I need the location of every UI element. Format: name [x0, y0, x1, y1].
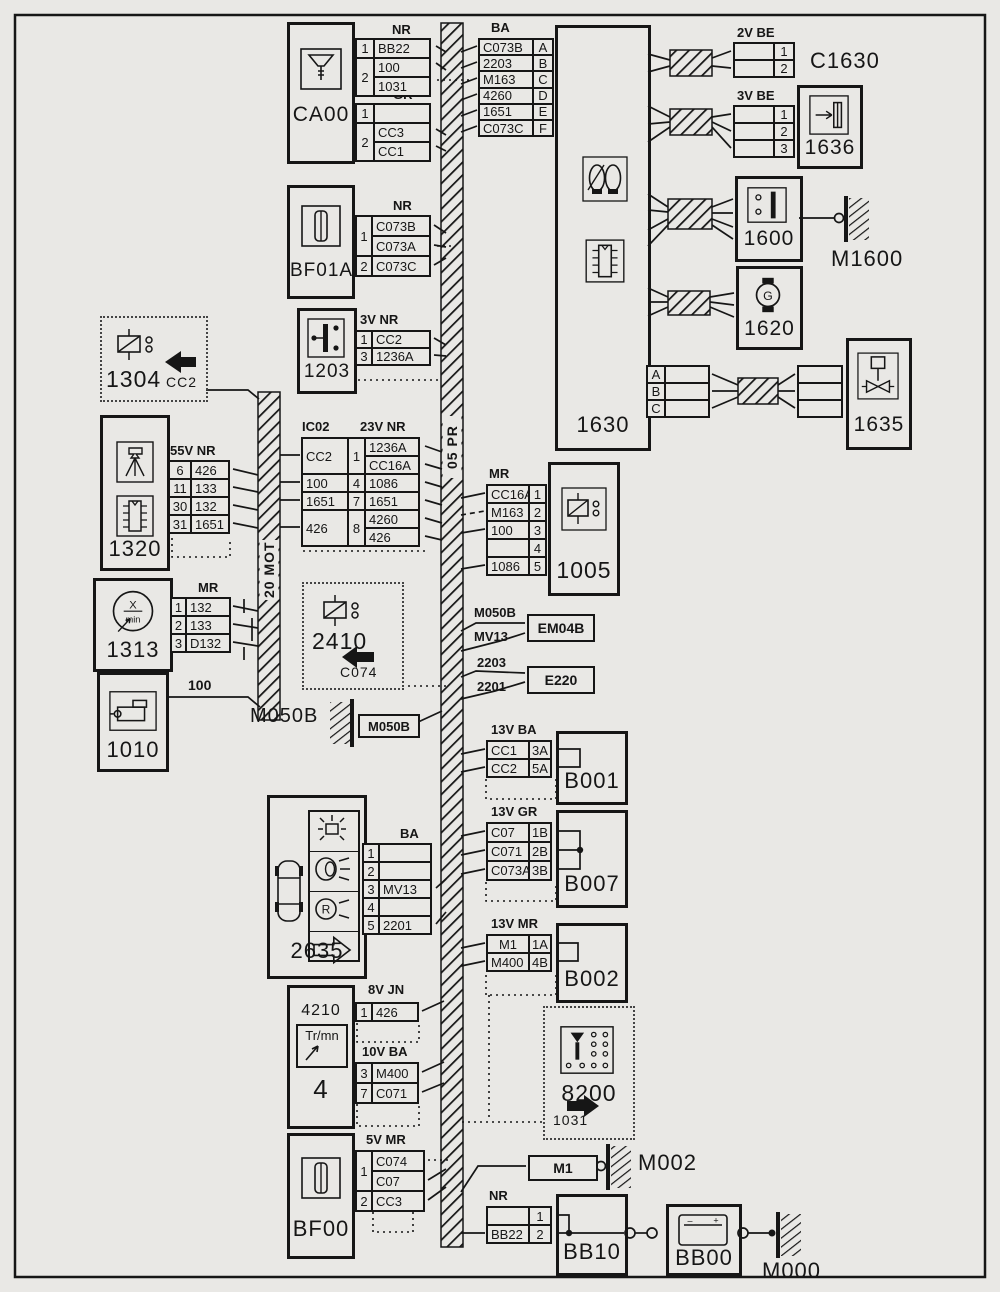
component-label: 1320 [103, 536, 167, 562]
table-cell: 1A [530, 936, 550, 952]
alternator-icon: G [747, 273, 789, 317]
car-top-view-icon [274, 856, 304, 926]
component-1620: G 1620 [736, 266, 803, 350]
component-label: 1636 [800, 136, 860, 160]
component-label: B001 [559, 768, 625, 794]
component-label: BF00 [290, 1216, 352, 1242]
table-cell: 1 [357, 1004, 371, 1020]
component-label: 1600 [738, 227, 800, 251]
table-cell: A [648, 367, 664, 382]
harness-bus-main [441, 23, 463, 1247]
table-cell: 3 [530, 522, 545, 538]
ca00-nr-table: 1BB2221001031 [355, 38, 431, 97]
table-cell: 2 [364, 863, 378, 879]
table-cell: 1 [172, 599, 185, 615]
table-header: 13V BA [491, 722, 537, 737]
table-cell: 7 [357, 1084, 371, 1102]
table-cell: 133 [187, 617, 229, 633]
hazard-icon-cell [310, 812, 358, 852]
table-cell: C073B [373, 217, 429, 235]
b002-table: M11AM4004B [486, 934, 552, 972]
table-cell: 426 [366, 529, 418, 545]
table-cell: 4 [364, 899, 378, 915]
component-label: 1010 [100, 737, 166, 763]
table-cell [799, 401, 841, 416]
component-1600: 1600 [735, 176, 803, 262]
table-cell [799, 367, 841, 382]
table-cell: 2 [357, 1192, 371, 1210]
table-cell: BB22 [488, 1226, 528, 1242]
table-cell [735, 107, 773, 122]
table-cell [380, 899, 430, 915]
table-cell: 3 [364, 881, 378, 897]
component-label: 1635 [849, 413, 909, 437]
table-cell: 2 [530, 504, 545, 520]
table-header: 5V MR [366, 1132, 406, 1147]
ground-m1600-label: M1600 [831, 246, 903, 272]
table-cell: 6 [170, 462, 190, 478]
wire-label-mv13: MV13 [474, 629, 508, 644]
ground-m002-label: M002 [638, 1150, 697, 1176]
component-label: 1313 [96, 637, 170, 663]
component-bf00: BF00 [287, 1133, 355, 1259]
ground-m1600 [835, 196, 870, 242]
table-cell: 1651 [192, 516, 228, 532]
table-cell: D132 [187, 635, 229, 651]
table-cell: 1 [364, 845, 378, 861]
table-cell: M163 [488, 504, 528, 520]
component-1636: 1636 [797, 85, 863, 169]
component-bb00: – + BB00 [666, 1204, 742, 1276]
table-cell: CC16A [488, 486, 528, 502]
table-cell: 1236A [366, 439, 418, 455]
component-label: B002 [559, 966, 625, 992]
bus-label-main: 05 PR [441, 416, 463, 478]
table-cell: M1 [488, 936, 528, 952]
table-cell: 4 [349, 475, 364, 491]
component-2410: 2410 C074 [302, 582, 404, 690]
t1005-table: CC16A1M16321003410865 [486, 484, 547, 576]
table-cell: 3 [357, 349, 371, 364]
be2v-table: 12 [733, 42, 795, 78]
table-cell: C073C [373, 257, 429, 275]
b001-table: CC13ACC25A [486, 740, 552, 778]
component-b007: B007 [556, 810, 628, 908]
injection-pump-icon [115, 440, 155, 484]
diagnostic-connector-icon [559, 1024, 615, 1076]
coils-icon [582, 156, 628, 202]
needle-icon [298, 1042, 342, 1062]
table-cell: 1 [775, 107, 793, 122]
table-cell [375, 105, 429, 122]
component-label: 1203 [300, 361, 354, 383]
component-1635: 1635 [846, 338, 912, 450]
table-cell: 11 [170, 480, 190, 496]
component-1320: 1320 [100, 415, 170, 571]
table-cell: 3B [530, 862, 550, 879]
table-cell: 426 [192, 462, 228, 478]
component-label: CA00 [290, 103, 352, 127]
wiring-diagram-page: 05 PR 20 MOT CA00 BF01A 1203 1304 CC2 [0, 0, 1000, 1292]
headlight-icon [310, 852, 354, 886]
table-cell: 4 [530, 540, 545, 556]
relay-icon [561, 487, 607, 531]
table-cell: 1 [349, 439, 364, 473]
table-cell: 2 [357, 257, 371, 275]
rpm-sensor-icon: X min [107, 587, 159, 639]
component-bf01a: BF01A [287, 185, 355, 299]
table-cell: 2 [357, 59, 373, 95]
table-header: 23V NR [360, 419, 406, 434]
battery-neg-text: – [687, 1216, 692, 1226]
table-cell: 1086 [366, 475, 418, 491]
component-1304: 1304 CC2 [100, 316, 208, 402]
injector-icon [857, 351, 899, 401]
table-cell: 1 [357, 1152, 371, 1190]
table-cell: 2 [530, 1226, 550, 1242]
bulb-icon [299, 47, 343, 91]
t2635-table: 123MV13452201 [362, 843, 432, 935]
ground-m002 [597, 1144, 632, 1190]
wire-label-m050b: M050B [474, 605, 516, 620]
table-cell: 1 [775, 44, 793, 59]
table-cell: 7 [349, 493, 364, 509]
bb10-nr-table: 1BB222 [486, 1206, 552, 1244]
table-cell: CC2 [373, 332, 429, 347]
fuse-icon [300, 204, 342, 248]
table-cell: CC16A [366, 457, 418, 473]
table-cell: 2 [357, 124, 373, 160]
throttle-potentiometer-icon [808, 94, 850, 136]
ground-m000 [769, 1212, 802, 1258]
table-cell: 31 [170, 516, 190, 532]
table-cell: 4B [530, 954, 550, 970]
table-header: MR [198, 580, 218, 595]
abc-1635-table [797, 365, 843, 418]
table-cell: 426 [373, 1004, 417, 1020]
alternator-g-text: G [763, 289, 773, 303]
chip-icon [115, 494, 155, 538]
table-cell: 3 [775, 141, 793, 156]
table-cell [666, 367, 708, 382]
component-label: 8200 [545, 1080, 633, 1107]
table-cell: C07 [488, 824, 528, 841]
reverse-light-icon: R [310, 892, 354, 926]
headlight-icon-cell [310, 852, 358, 892]
table-cell: 426 [303, 511, 347, 545]
connector-label: C074 [340, 664, 377, 680]
table-cell: 1 [357, 40, 373, 57]
table-cell: 5 [530, 558, 545, 574]
splice-em04b-box: EM04B [527, 614, 595, 642]
door-switch-icon [746, 185, 788, 225]
table-header: IC02 [302, 419, 329, 434]
table-cell: C071 [488, 843, 528, 860]
component-2635: R 2635 [267, 795, 367, 979]
table-header: BA [491, 20, 510, 35]
table-cell: A [534, 40, 552, 54]
table-cell: 100 [488, 522, 528, 538]
table-cell: 3 [172, 635, 185, 651]
component-label: 1630 [558, 412, 648, 438]
table-cell: 1651 [303, 493, 347, 509]
component-4210: 4210 Tr/mn 4 [287, 985, 355, 1129]
table-cell: C073B [480, 40, 532, 54]
table-cell: E [534, 105, 552, 119]
table-cell: CC2 [488, 760, 528, 776]
table-cell: 100 [375, 59, 429, 76]
wire-label-2201: 2201 [477, 679, 506, 694]
be3v-table: 123 [733, 105, 795, 158]
component-label: 2635 [270, 938, 364, 964]
table-cell: M400 [488, 954, 528, 970]
table-cell [380, 863, 430, 879]
splice-m050b-box: M050B [358, 714, 420, 738]
table-cell: MV13 [380, 881, 430, 897]
reverse-r-text: R [322, 903, 331, 917]
t1203-table: 1CC231236A [355, 330, 431, 366]
table-cell: C071 [373, 1084, 417, 1102]
table-cell [735, 61, 773, 76]
table-header: 13V MR [491, 916, 538, 931]
table-cell: C073A [488, 862, 528, 879]
table-cell: 1 [357, 105, 373, 122]
ground-m000-label: M000 [762, 1258, 821, 1284]
table-cell: M400 [373, 1064, 417, 1082]
table-cell [799, 384, 841, 399]
table-cell: 30 [170, 498, 190, 514]
component-label: BB00 [669, 1245, 739, 1271]
table-cell: C [648, 401, 664, 416]
splice-m050b-label: M050B [250, 705, 318, 728]
ground-m050b [330, 699, 352, 747]
component-ca00: CA00 [287, 22, 355, 164]
component-label: 1304 [106, 366, 161, 393]
ca00-gr-table: 12CC3CC1 [355, 103, 431, 162]
table-cell: 1651 [480, 105, 532, 119]
table-cell: CC3 [373, 1192, 423, 1210]
table-header: MR [489, 466, 509, 481]
component-1203: 1203 [297, 308, 357, 394]
relay-icon [322, 592, 366, 632]
t1313-table: 113221333D132 [170, 597, 231, 653]
table-header: 10V BA [362, 1044, 408, 1059]
table-cell: 5 [364, 917, 378, 933]
table-cell [666, 384, 708, 399]
table-cell: 8 [349, 511, 364, 545]
starter-motor-icon [108, 689, 158, 733]
table-cell: C074 [373, 1152, 423, 1170]
table-cell [380, 845, 430, 861]
component-label: B007 [559, 871, 625, 897]
table-cell: CC1 [375, 143, 429, 160]
bus-label-motor: 20 MOT [258, 540, 280, 600]
table-cell: 2201 [380, 917, 430, 933]
table-cell: C07 [373, 1172, 423, 1190]
table-header: 3V NR [360, 312, 398, 327]
component-bb10: BB10 [556, 1194, 628, 1276]
table-cell: 1 [357, 217, 371, 255]
table-cell [488, 1208, 528, 1224]
splice-e220-box: E220 [527, 666, 595, 694]
wire-label-2203: 2203 [477, 655, 506, 670]
table-header: NR [392, 22, 411, 37]
bf00-mr-table: 1C074C072CC3 [355, 1150, 425, 1212]
component-1630: 1630 [555, 25, 651, 451]
oil-pressure-switch-icon [306, 317, 346, 359]
component-1005: 1005 [548, 462, 620, 596]
t1320-table: 64261113330132311651 [168, 460, 230, 534]
relay-icon [116, 326, 160, 366]
table-cell: 1B [530, 824, 550, 841]
rpm-x-text: X [129, 599, 137, 611]
panel-number-label: 4 [290, 1074, 352, 1105]
table-header: 3V BE [737, 88, 775, 103]
table-cell [488, 540, 528, 556]
table-cell: 2 [775, 61, 793, 76]
splice-m1-box: M1 [528, 1155, 598, 1181]
table-header: 55V NR [170, 443, 216, 458]
table-header: 8V JN [368, 982, 404, 997]
chip-icon [582, 238, 628, 284]
table-cell [735, 44, 773, 59]
table-cell: B [648, 384, 664, 399]
table-header: 2V BE [737, 25, 775, 40]
table-cell: 3 [357, 1064, 371, 1082]
reverse-icon-cell: R [310, 892, 358, 932]
component-label: 1620 [739, 317, 800, 341]
table-cell: C073A [373, 237, 429, 255]
table-cell: 5A [530, 760, 550, 776]
table-cell [666, 401, 708, 416]
table-cell: 132 [187, 599, 229, 615]
component-b001: B001 [556, 731, 628, 805]
ecu-ba-table: C073BA2203BM163C4260D1651EC073CF [478, 38, 554, 137]
table-cell: 1 [530, 486, 545, 502]
table-cell: 3A [530, 742, 550, 758]
battery-icon: – + [677, 1213, 729, 1247]
table-cell: F [534, 121, 552, 135]
table-cell [735, 141, 773, 156]
component-label: BB10 [559, 1239, 625, 1265]
table-cell: CC1 [488, 742, 528, 758]
hazard-light-icon [310, 812, 354, 846]
table-cell: 4260 [366, 511, 418, 527]
connector-c1630-label: C1630 [810, 48, 880, 74]
component-1313: X min 1313 [93, 578, 173, 672]
ic02-table: CC211236ACC16A10041086165171651426842604… [301, 437, 420, 547]
component-label: 1005 [551, 557, 617, 584]
bf01a-nr-table: 1C073BC073A2C073C [355, 215, 431, 277]
table-cell: C [534, 72, 552, 86]
component-label: 2410 [312, 628, 367, 655]
ba10v-table: 3M4007C071 [355, 1062, 419, 1104]
table-cell: 1086 [488, 558, 528, 574]
abc-1630-table: ABC [646, 365, 710, 418]
table-cell: 1 [530, 1208, 550, 1224]
table-cell: 100 [303, 475, 347, 491]
table-cell: 1031 [375, 78, 429, 95]
component-1010: 1010 [97, 672, 169, 772]
component-b002: B002 [556, 923, 628, 1003]
connector-label: 1031 [553, 1112, 588, 1128]
table-cell: M163 [480, 72, 532, 86]
table-cell: BB22 [375, 40, 429, 57]
table-cell: CC3 [375, 124, 429, 141]
table-cell: 2B [530, 843, 550, 860]
table-cell: D [534, 89, 552, 103]
battery-pos-text: + [713, 1216, 718, 1226]
wire-label-100: 100 [188, 677, 211, 693]
table-header: 13V GR [491, 804, 537, 819]
tachometer-icon: Tr/mn [296, 1024, 348, 1068]
table-cell [735, 124, 773, 139]
table-cell: 2 [775, 124, 793, 139]
table-header: BA [400, 826, 419, 841]
table-header: NR [393, 198, 412, 213]
table-cell: B [534, 56, 552, 70]
jn8v-table: 1426 [355, 1002, 419, 1022]
gauge-id-label: 4210 [290, 1002, 352, 1020]
table-cell: 1236A [373, 349, 429, 364]
table-cell: 133 [192, 480, 228, 496]
component-label: BF01A [290, 260, 352, 282]
table-header: NR [489, 1188, 508, 1203]
table-cell: C073C [480, 121, 532, 135]
table-cell: 2203 [480, 56, 532, 70]
tachometer-unit-label: Tr/mn [298, 1028, 346, 1043]
table-cell: 2 [172, 617, 185, 633]
table-cell: CC2 [303, 439, 347, 473]
table-cell: 1651 [366, 493, 418, 509]
table-cell: 4260 [480, 89, 532, 103]
table-cell: 1 [357, 332, 371, 347]
fuse-icon [300, 1156, 342, 1200]
component-8200: 8200 1031 [543, 1006, 635, 1140]
b007-table: C071BC0712BC073A3B [486, 822, 552, 881]
table-cell: 132 [192, 498, 228, 514]
connector-label: CC2 [166, 374, 197, 390]
